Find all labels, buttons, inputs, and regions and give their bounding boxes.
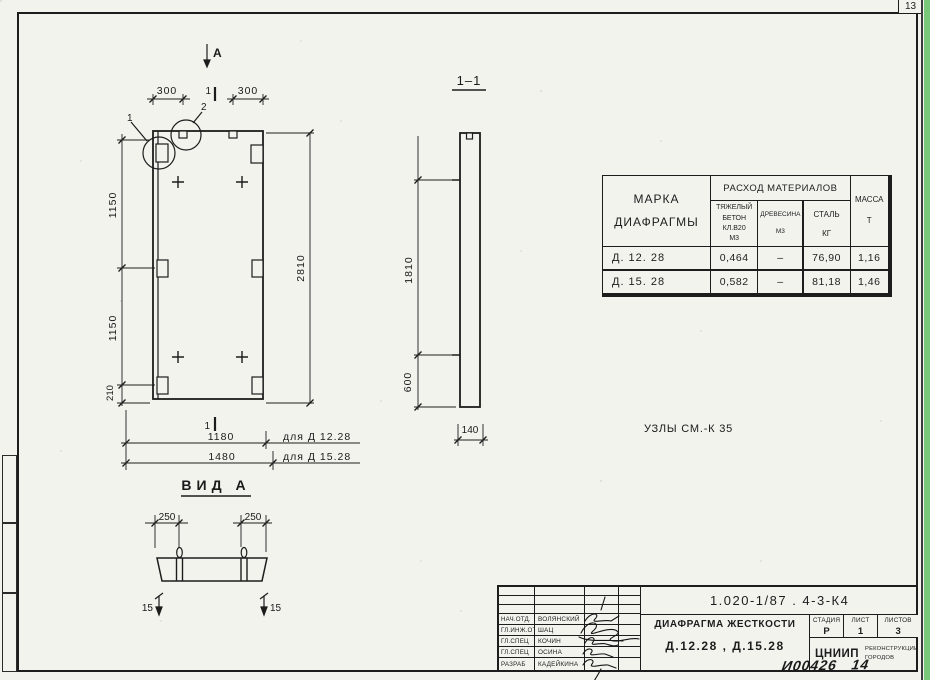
table-cell: 1,16 xyxy=(851,247,888,269)
sheet-cut-edge xyxy=(921,0,923,680)
dim-ticks-section xyxy=(415,177,487,444)
section-title: 1–1 xyxy=(457,73,482,88)
table-cell: – xyxy=(758,247,802,269)
signature-cell xyxy=(585,647,618,657)
signer-name: КОЧИН xyxy=(535,636,584,646)
stage-value-row: Р 1 3 xyxy=(810,625,918,638)
sheet-number: 1 xyxy=(844,625,877,637)
note-uzly: УЗЛЫ СМ.-К 35 xyxy=(644,423,733,435)
table-header-massa: МАССА Т xyxy=(851,176,888,246)
sheet-label: ЛИСТ xyxy=(844,615,877,625)
dim-2810: 2810 xyxy=(295,254,307,281)
embed-plate xyxy=(156,144,168,162)
signature-cell xyxy=(585,636,618,646)
embed-plate xyxy=(252,260,263,277)
table-header-rashod: РАСХОД МАТЕРИАЛОВ xyxy=(711,176,849,200)
table-cell: 0,464 xyxy=(711,247,757,269)
section-top-notch xyxy=(467,133,473,139)
page-number: 13 xyxy=(905,1,916,12)
cross-mark xyxy=(236,351,248,363)
signature-cell xyxy=(585,614,618,624)
signer-role: РАЗРАБ xyxy=(499,658,534,670)
drawing-sheet: 13 xyxy=(0,0,930,680)
embed-plate xyxy=(251,145,263,163)
dim-ticks-bottom xyxy=(123,440,277,467)
dim-210: 210 xyxy=(105,385,116,401)
dim-1180: 1180 xyxy=(208,431,235,443)
dim-300-right: 300 xyxy=(238,85,259,97)
table-cell: 0,582 xyxy=(711,271,757,293)
dim-1150-upper: 1150 xyxy=(107,192,119,219)
dim-1180-note: для Д 12.28 xyxy=(283,431,351,443)
page-number-box: 13 xyxy=(898,0,922,14)
detail-label-1: 1 xyxy=(127,113,133,124)
dim-600: 600 xyxy=(402,372,414,393)
dim-1150-lower: 1150 xyxy=(107,315,119,342)
stage-label: СТАДИЯ xyxy=(810,615,843,625)
materials-table: МАРКА ДИАФРАГМЫ РАСХОД МАТЕРИАЛОВ МАССА … xyxy=(602,175,892,297)
signer-role: ГЛ.СПЕЦ xyxy=(499,647,534,657)
document-number: 1.020-1/87 . 4-3-К4 xyxy=(641,587,918,615)
dim-lines-left xyxy=(117,134,155,406)
dim-300-left: 300 xyxy=(157,85,178,97)
view-arrow-head xyxy=(204,60,210,67)
panel-elevation-view xyxy=(117,44,360,470)
signer-role: ГЛ.СПЕЦ xyxy=(499,636,534,646)
table-cell: 1,46 xyxy=(851,271,888,293)
drawing-layer: А 1 2 1 1 300 300 1150 1150 210 2810 118… xyxy=(0,0,930,680)
dim-1810: 1810 xyxy=(403,256,415,283)
table-cell: 81,18 xyxy=(804,271,850,293)
drawing-subtitle: Д.12.28 , Д.15.28 xyxy=(641,639,809,653)
signature-cell xyxy=(585,658,618,670)
top-notch-right xyxy=(229,131,237,138)
table-row-marka: Д. 15. 28 xyxy=(603,271,710,293)
table-row-marka: Д. 12. 28 xyxy=(603,247,710,269)
dim-1480-note: для Д 15.28 xyxy=(283,451,351,463)
stage-header-row: СТАДИЯ ЛИСТ ЛИСТОВ xyxy=(810,615,918,625)
table-header-stal: СТАЛЬ КГ xyxy=(804,201,850,246)
dim-1480: 1480 xyxy=(208,451,235,463)
cross-mark xyxy=(172,351,184,363)
view-a-title: ВИД А xyxy=(181,477,250,493)
signer-name: ШАЦ xyxy=(535,625,584,635)
signer-role: НАЧ.ОТД. xyxy=(499,614,534,624)
offset-arrow-left xyxy=(155,593,163,615)
signature-cell xyxy=(585,625,618,635)
signer-role: ГЛ.ИНЖ.ОТД. xyxy=(499,625,534,635)
dim-15-right: 15 xyxy=(270,603,282,614)
view-a-rib-lines xyxy=(177,558,248,581)
signer-name: КАДЕЙКИНА xyxy=(535,658,584,670)
cross-mark xyxy=(236,176,248,188)
section-label-top: 1 xyxy=(205,86,211,97)
drawing-title: ДИАФРАГМА ЖЕСТКОСТИ xyxy=(641,619,809,630)
offset-arrow-right xyxy=(260,593,268,615)
dim-140: 140 xyxy=(462,425,479,436)
lifting-loop-right xyxy=(241,548,247,558)
table-header-beton: ТЯЖЕЛЫЙ БЕТОН КЛ.В20 М3 xyxy=(711,201,757,246)
top-notch-left xyxy=(179,131,187,138)
signer-name: ВОЛЯНСКИЙ xyxy=(535,614,584,624)
dim-lines-section xyxy=(414,136,488,446)
lifting-loop-left xyxy=(177,548,183,558)
detail-label-2: 2 xyxy=(201,102,207,113)
embed-plate xyxy=(157,260,168,277)
dim-250-right: 250 xyxy=(245,512,262,523)
signature-stamp-grid: НАЧ.ОТД. ВОЛЯНСКИЙ ГЛ.ИНЖ.ОТД. ШАЦ ГЛ.СП… xyxy=(499,587,640,670)
embed-plate xyxy=(252,377,263,394)
embed-plate xyxy=(157,377,168,394)
table-header-drevesina: ДРЕВЕСИНА М3 xyxy=(758,201,802,246)
cross-mark xyxy=(172,176,184,188)
table-cell: – xyxy=(758,271,802,293)
dim-250-left: 250 xyxy=(159,512,176,523)
scan-green-edge xyxy=(924,0,930,680)
sheets-total: 3 xyxy=(878,625,918,637)
handwritten-inventory-number: И00426 14 xyxy=(781,656,871,674)
view-arrow-label: А xyxy=(213,46,222,60)
section-1-1-view xyxy=(414,90,488,446)
signer-name: ОСИНА xyxy=(535,647,584,657)
stage-value: Р xyxy=(810,625,843,637)
view-a-panel-outline xyxy=(157,558,267,581)
table-header-marka: МАРКА ДИАФРАГМЫ xyxy=(603,176,710,246)
table-cell: 76,90 xyxy=(804,247,850,269)
dim-15-left: 15 xyxy=(142,603,154,614)
sheets-label: ЛИСТОВ xyxy=(878,615,918,625)
